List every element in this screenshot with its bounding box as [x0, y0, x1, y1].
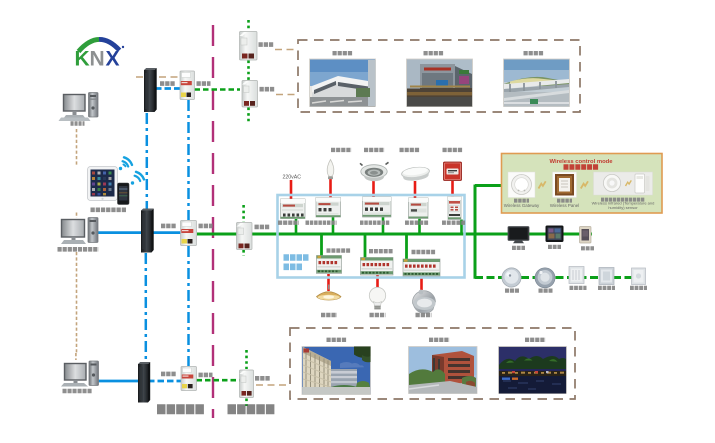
svg-text:Wireless Panel: Wireless Panel	[550, 203, 579, 208]
svg-text:220vAC: 220vAC	[283, 174, 302, 180]
svg-text:humidity) sensor: humidity) sensor	[608, 205, 638, 210]
svg-text:K: K	[75, 47, 90, 70]
svg-text:Wireless Gateway: Wireless Gateway	[504, 203, 540, 208]
svg-text:Wireless control mode: Wireless control mode	[549, 159, 613, 165]
svg-text:N: N	[90, 47, 104, 70]
svg-text:X: X	[106, 47, 120, 70]
